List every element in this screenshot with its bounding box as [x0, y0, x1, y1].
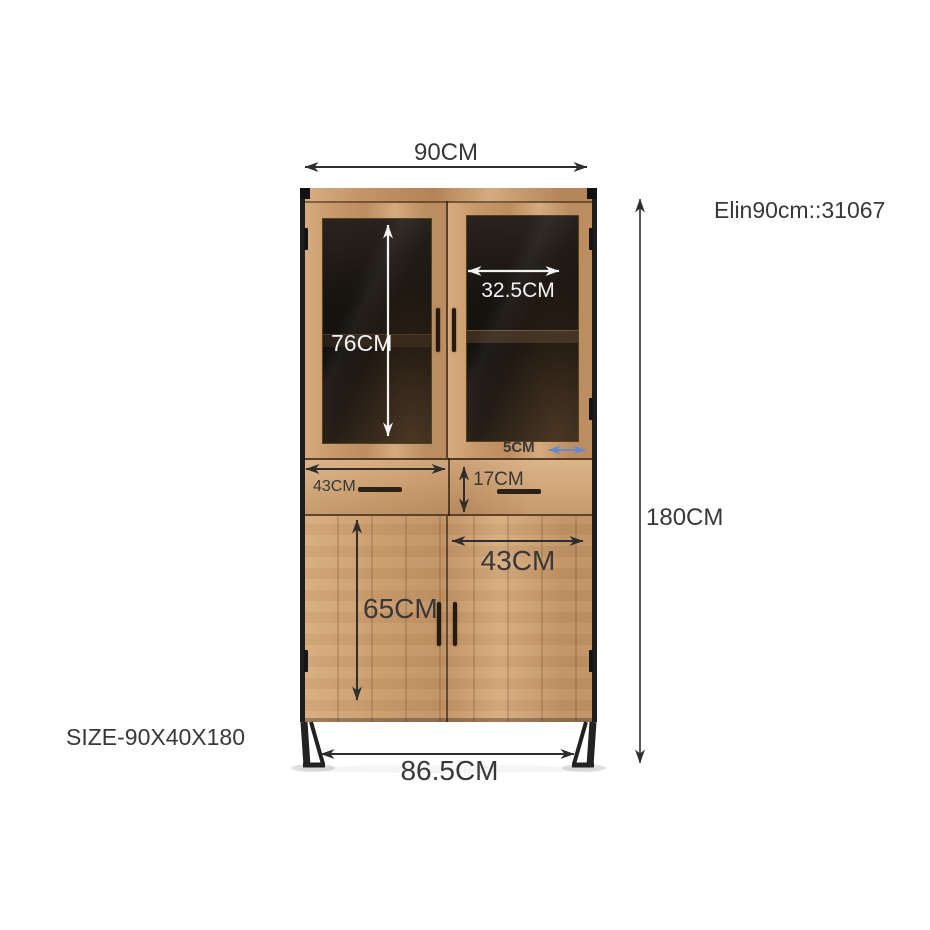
dim-label-lower-door-width: 43CM: [453, 546, 583, 575]
glass-reflection: [467, 216, 578, 441]
drawer-handle-left: [358, 487, 402, 492]
cabinet-bottom-shadow: [305, 718, 592, 722]
hinge-icon: [589, 398, 593, 420]
dim-label-overall-width: 90CM: [390, 140, 502, 165]
hinge-icon: [589, 228, 593, 250]
dim-label-overall-height: 180CM: [646, 505, 723, 530]
cabinet-leg-right-post: [590, 722, 593, 766]
lower-door-handle-right: [453, 602, 457, 646]
cabinet-leg-right-strut: [574, 722, 586, 764]
hinge-icon: [589, 650, 593, 672]
upper-door-seam: [446, 201, 448, 458]
cabinet-leg-left-post: [304, 722, 307, 766]
cabinet-leg-left-strut: [311, 722, 323, 764]
dim-label-lower-door-height: 65CM: [363, 594, 438, 623]
leg-shadow-left: [291, 764, 335, 772]
leg-shadow-right: [562, 764, 606, 772]
dim-label-base-width: 86.5CM: [377, 756, 522, 785]
frame-corner-cap-right: [587, 188, 597, 199]
dim-label-frame-offset: 5CM: [503, 440, 535, 456]
dim-label-drawer-width: 43CM: [313, 479, 356, 496]
lower-door-seam: [446, 516, 448, 722]
dim-label-glass-door-width: 32.5CM: [468, 280, 568, 302]
product-model-code: Elin90cm::31067: [714, 198, 885, 222]
product-size-code: SIZE-90X40X180: [66, 725, 245, 749]
frame-corner-cap-left: [300, 188, 310, 199]
metal-rail-right: [592, 190, 597, 722]
dim-label-glass-door-height: 76CM: [331, 331, 392, 355]
drawer-divider: [448, 458, 450, 516]
hinge-icon: [304, 228, 308, 250]
metal-rail-left: [300, 190, 305, 722]
product-dimension-diagram: 90CM Elin90cm::31067 76CM 32.5CM 5CM 43C…: [0, 0, 930, 930]
cabinet-top-board: [302, 188, 595, 203]
hinge-icon: [304, 650, 308, 672]
upper-door-handle-left: [436, 308, 440, 352]
upper-glass-door-right: [448, 201, 592, 458]
glass-panel-right: [466, 215, 579, 442]
upper-door-handle-right: [452, 308, 456, 352]
cabinet-illustration: [300, 188, 597, 722]
dim-label-drawer-height: 17CM: [473, 470, 524, 490]
